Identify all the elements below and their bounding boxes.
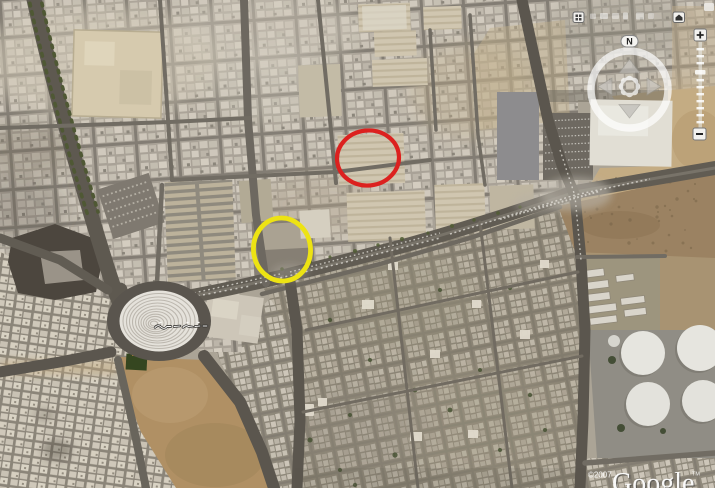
svg-text:©2007: ©2007 [588, 471, 612, 480]
svg-text:Google: Google [612, 468, 694, 488]
svg-text:TM: TM [692, 472, 700, 478]
svg-text:N: N [626, 37, 633, 47]
